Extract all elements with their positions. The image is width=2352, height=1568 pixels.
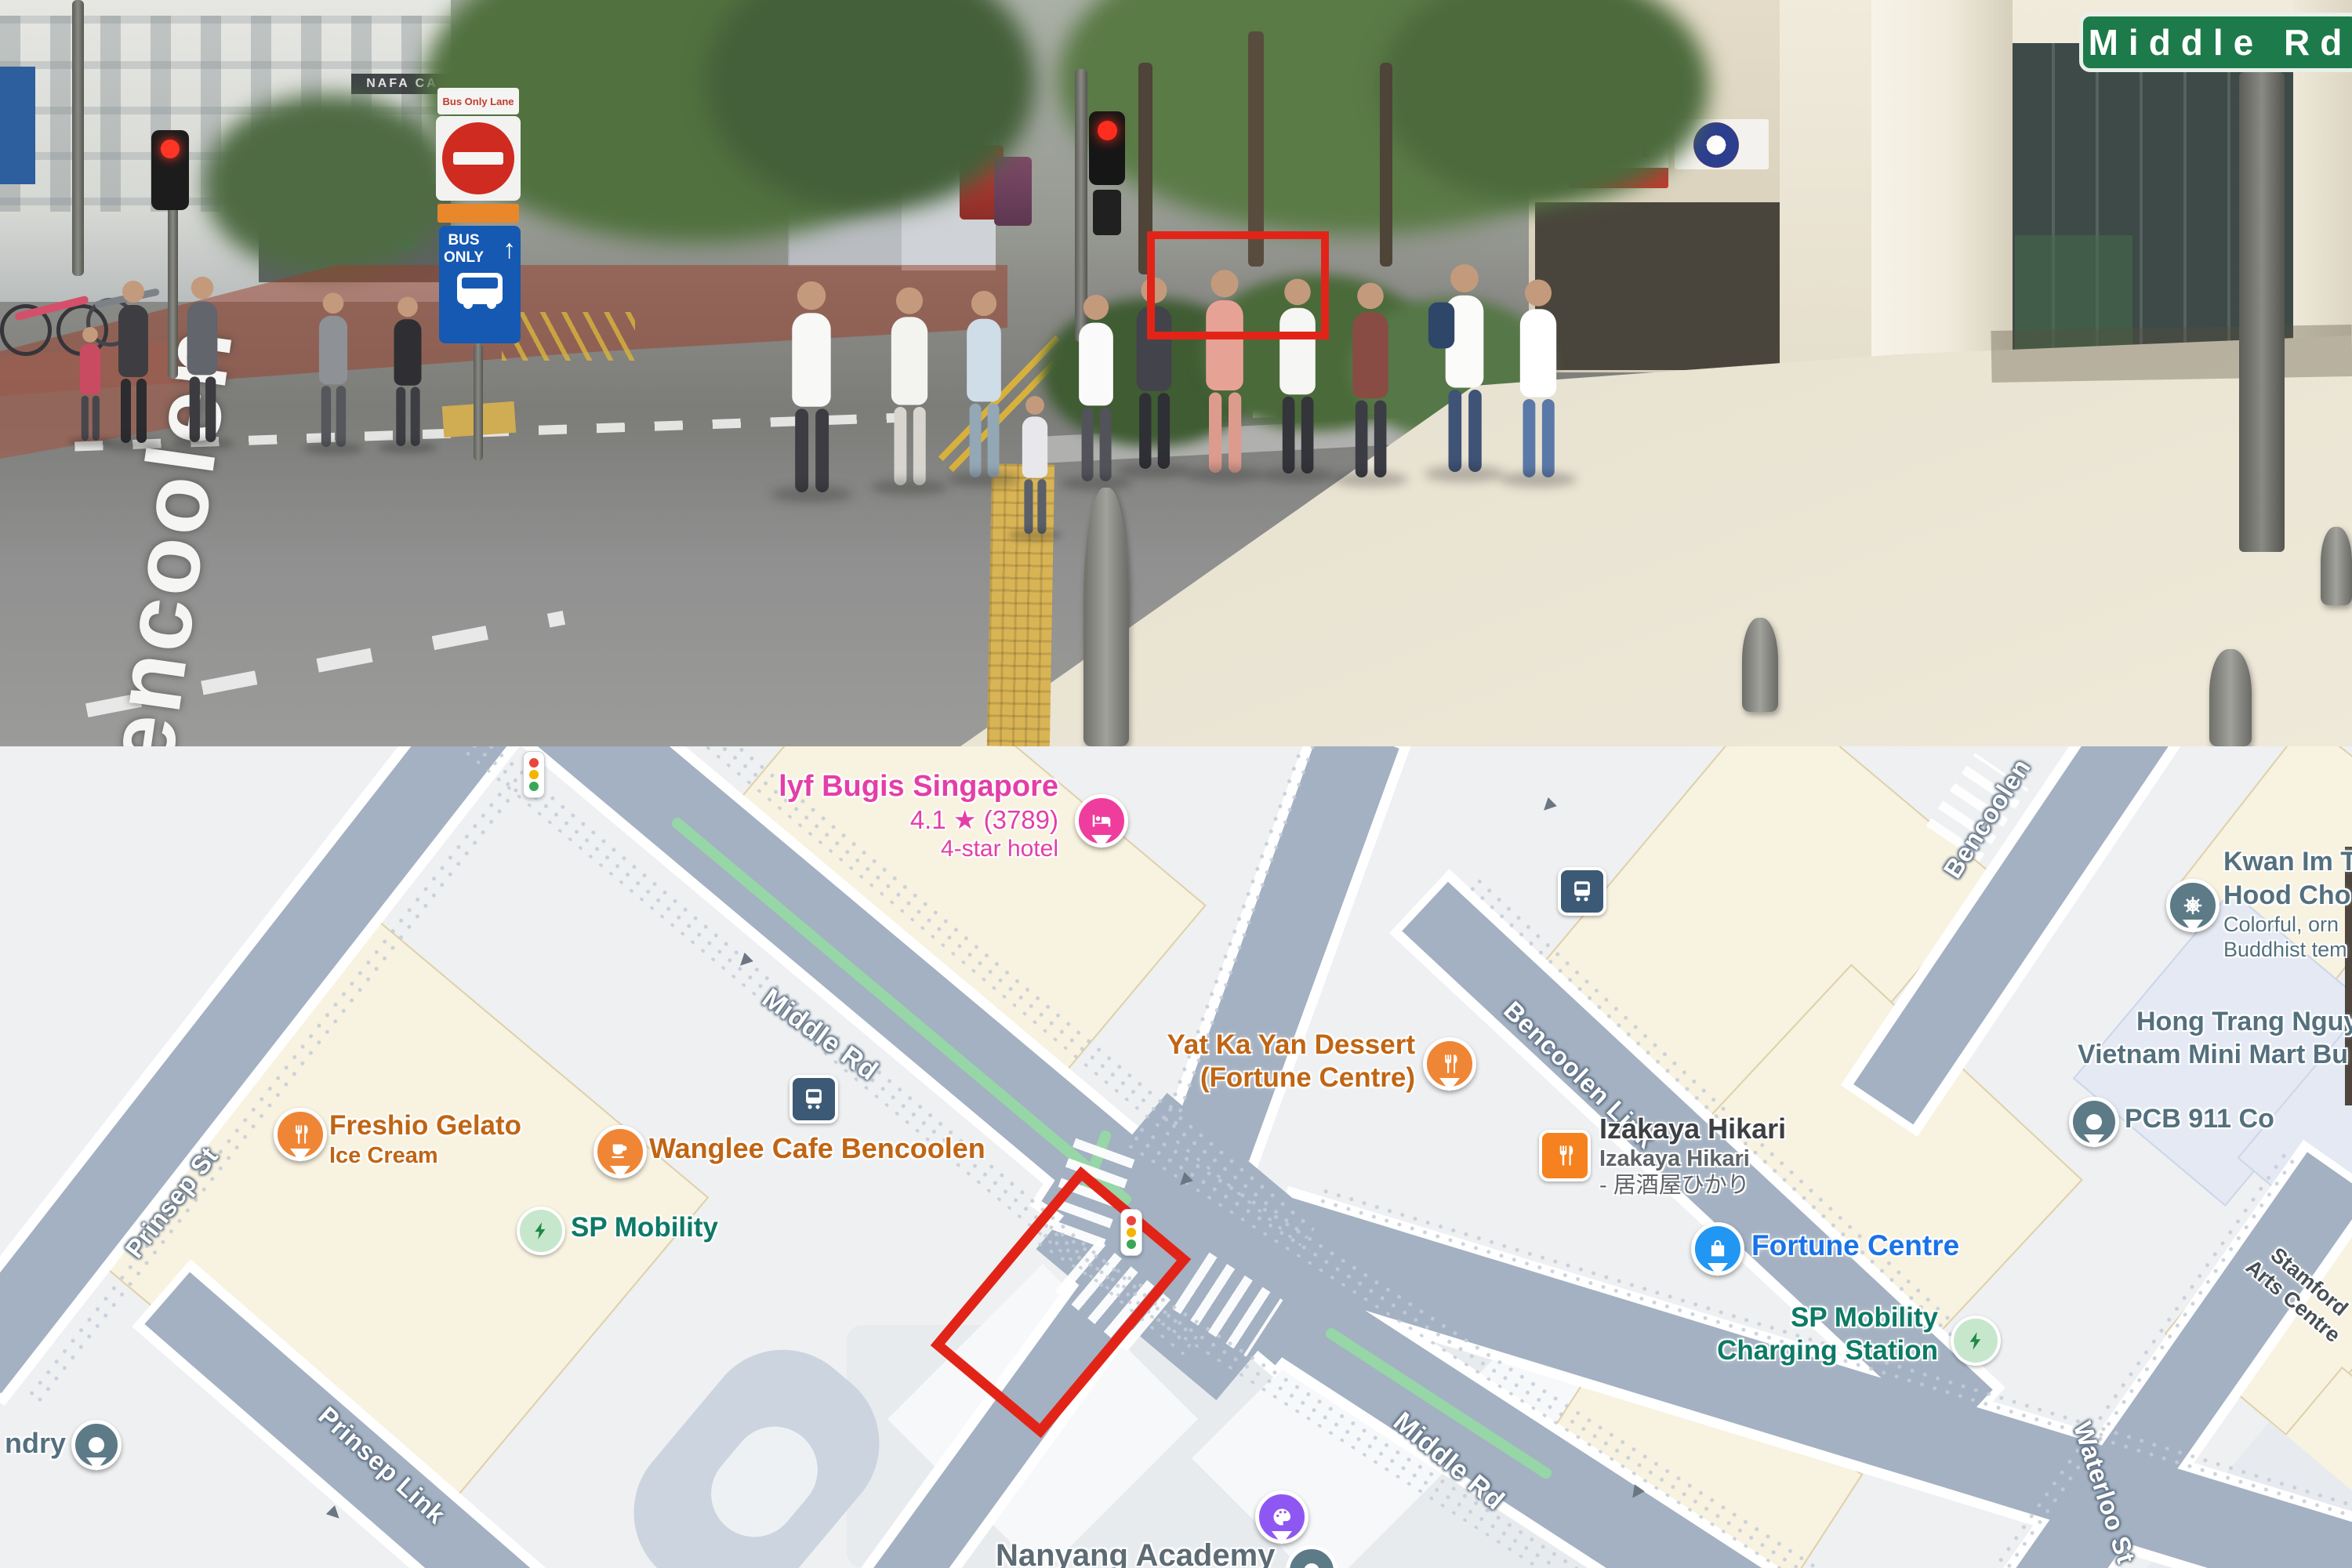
poi-fortune-centre[interactable]: Fortune Centre xyxy=(1751,1229,1959,1262)
middle-rd-street-sign: Middle Rd xyxy=(2079,13,2352,72)
bus-stop-icon[interactable] xyxy=(789,1075,838,1123)
poi-hong-trang-line1[interactable]: Hong Trang Nguy xyxy=(2136,1007,2352,1037)
poi-sub-line3[interactable]: - 居酒屋ひかり xyxy=(1599,1173,1786,1199)
pedestrian xyxy=(1508,279,1569,477)
poi-name[interactable]: Izakaya Hikari xyxy=(1599,1112,1786,1145)
place-pin-icon[interactable] xyxy=(2069,1097,2119,1147)
poi-lyf-bugis[interactable]: lyf Bugis Singapore 4.1 ★ (3789) 4-star … xyxy=(674,770,1058,863)
poi-name[interactable]: Kwan Im T xyxy=(2223,845,2352,879)
poi-kwan-im[interactable]: Kwan Im T Hood Cho Colorful, orn Buddhis… xyxy=(2223,845,2352,963)
tree-trunk xyxy=(1380,63,1392,267)
tree-canopy xyxy=(204,94,455,274)
traffic-light-red xyxy=(161,140,180,158)
poi-freshio-gelato[interactable]: Freshio Gelato Ice Cream xyxy=(329,1109,521,1170)
bollard xyxy=(2209,649,2252,746)
pedestrian-with-backpack xyxy=(1432,264,1497,472)
art-school-pin-icon[interactable] xyxy=(1255,1490,1308,1544)
poi-pcb-911[interactable]: PCB 911 Co xyxy=(2125,1104,2274,1134)
pedestrian xyxy=(385,297,431,446)
hotel-pin-icon[interactable] xyxy=(1075,794,1128,848)
poi-izakaya-hikari[interactable]: Izakaya Hikari Izakaya Hikari - 居酒屋ひかり xyxy=(1599,1112,1786,1199)
bus-only-word1: BUS xyxy=(444,232,484,249)
pin-dot xyxy=(2086,1114,2102,1130)
pedestrian xyxy=(955,291,1013,477)
poi-name-line2[interactable]: Charging Station xyxy=(1631,1334,1938,1367)
pedestrian xyxy=(310,292,358,447)
ev-charging-icon[interactable] xyxy=(1951,1316,2001,1366)
bus-distant-2 xyxy=(994,157,1032,226)
poi-category[interactable]: 4-star hotel xyxy=(674,835,1058,863)
street-lamp-pole xyxy=(72,0,84,276)
annotation-rect-streetview xyxy=(1147,231,1329,339)
poi-wanglee-cafe[interactable]: Wanglee Cafe Bencoolen xyxy=(649,1132,985,1165)
poi-laundry-partial[interactable]: ndry xyxy=(5,1427,66,1460)
pedestrian-child xyxy=(1014,396,1056,534)
one-way-arrow-icon: ▼ xyxy=(1534,791,1563,821)
map-panel[interactable]: ▼ ▼ ▼ ▼ ▼ xyxy=(0,746,2352,1568)
poi-sp-mobility[interactable]: SP Mobility xyxy=(571,1212,718,1243)
place-pin-icon[interactable] xyxy=(71,1420,122,1470)
bollard xyxy=(1742,618,1778,712)
cafe-pin-icon[interactable] xyxy=(593,1125,647,1178)
middle-rd-street-sign-text: Middle Rd xyxy=(2089,21,2352,64)
bollard xyxy=(1083,488,1129,746)
bus-stop-icon[interactable] xyxy=(1558,867,1606,916)
restaurant-square-icon[interactable] xyxy=(1539,1130,1591,1181)
poi-name[interactable]: SP Mobility xyxy=(1631,1301,1938,1334)
poi-nanyang-academy[interactable]: Nanyang Academy xyxy=(996,1538,1275,1568)
pedestrian xyxy=(108,281,158,443)
composite-screenshot: NAFA CA Mart xyxy=(0,0,2352,1568)
traffic-light-red-center xyxy=(1098,121,1117,140)
shopping-pin-icon[interactable] xyxy=(1691,1222,1744,1276)
temple-pin-icon[interactable] xyxy=(2166,879,2220,932)
pedestrian xyxy=(1067,295,1125,481)
pedestrian xyxy=(1341,283,1401,477)
street-sign-pole xyxy=(2239,72,2285,552)
bollard xyxy=(2321,527,2352,605)
up-arrow-icon: ↑ xyxy=(503,236,516,263)
pedestrian xyxy=(879,287,940,485)
poi-sub-line2[interactable]: Izakaya Hikari xyxy=(1599,1145,1786,1173)
bus-only-sign: BUS ONLY ↑ xyxy=(439,226,521,343)
poi-name[interactable]: Yat Ka Yan Dessert xyxy=(1054,1029,1415,1062)
bus-sign-header-text: Bus Only Lane xyxy=(442,96,514,107)
shop-logo-circle xyxy=(1693,122,1739,168)
street-view-panel[interactable]: NAFA CA Mart xyxy=(0,0,2352,746)
plaza-building-shadow xyxy=(1991,325,2352,383)
yellow-zigzag-marking xyxy=(502,312,635,361)
poi-desc-line1[interactable]: Colorful, orn xyxy=(2223,912,2352,937)
bus-only-word2: ONLY xyxy=(444,249,484,267)
backpack xyxy=(1428,303,1454,349)
pedestrian xyxy=(779,281,844,492)
poi-yat-ka-yan[interactable]: Yat Ka Yan Dessert (Fortune Centre) xyxy=(1054,1029,1415,1094)
poi-sp-charging[interactable]: SP Mobility Charging Station xyxy=(1631,1301,1938,1367)
pedestrian-signal-box xyxy=(1093,190,1121,235)
poi-name-line2[interactable]: Hood Cho xyxy=(2223,879,2352,913)
no-entry-bar xyxy=(453,152,503,165)
bus-sign-header-plate: Bus Only Lane xyxy=(437,88,519,114)
pedestrian xyxy=(73,327,108,441)
traffic-light-icon[interactable] xyxy=(523,751,545,798)
poi-category[interactable]: Ice Cream xyxy=(329,1142,521,1170)
restaurant-pin-icon[interactable] xyxy=(274,1108,327,1161)
poi-desc-line2[interactable]: Buddhist tem xyxy=(2223,937,2352,962)
building-left-banner xyxy=(0,67,35,184)
sign-orange-strip xyxy=(437,204,519,223)
pin-dot xyxy=(89,1437,104,1453)
poi-name[interactable]: lyf Bugis Singapore xyxy=(674,770,1058,804)
ev-charging-icon[interactable] xyxy=(517,1207,565,1255)
poi-rating[interactable]: 4.1 ★ (3789) xyxy=(674,804,1058,836)
bus-pictogram-icon xyxy=(457,273,503,304)
poi-name[interactable]: Freshio Gelato xyxy=(329,1109,521,1142)
poi-name-line2[interactable]: (Fortune Centre) xyxy=(1054,1062,1415,1094)
sign-pole xyxy=(474,343,483,461)
pedestrian xyxy=(176,277,227,442)
traffic-light-icon[interactable] xyxy=(1120,1209,1142,1256)
poi-hong-trang-line2[interactable]: Vietnam Mini Mart Bu xyxy=(2078,1040,2348,1070)
restaurant-pin-icon[interactable] xyxy=(1423,1037,1476,1091)
